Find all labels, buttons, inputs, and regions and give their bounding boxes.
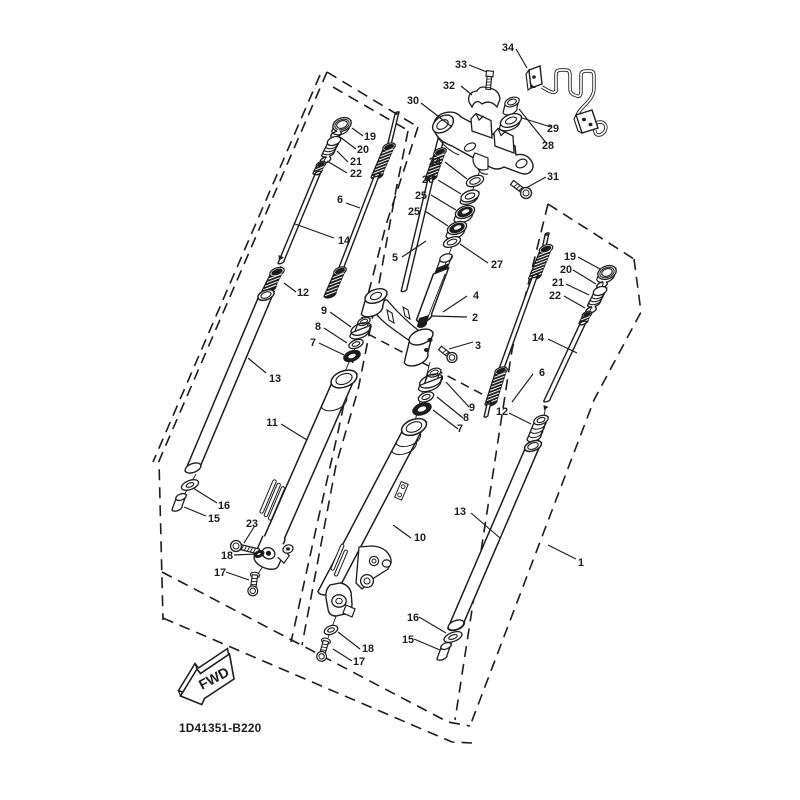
svg-text:6: 6 (539, 367, 545, 379)
svg-text:20: 20 (357, 144, 369, 156)
svg-text:15: 15 (208, 513, 220, 525)
svg-text:21: 21 (552, 277, 564, 289)
svg-text:29: 29 (547, 123, 559, 135)
svg-text:18: 18 (362, 643, 374, 655)
svg-text:24: 24 (429, 156, 441, 168)
svg-text:17: 17 (353, 656, 365, 668)
svg-text:19: 19 (564, 251, 576, 263)
svg-text:15: 15 (402, 634, 414, 646)
svg-text:23: 23 (246, 518, 258, 530)
svg-text:27: 27 (491, 259, 503, 271)
svg-text:17: 17 (214, 567, 226, 579)
svg-text:25: 25 (415, 190, 427, 202)
svg-text:9: 9 (469, 402, 475, 414)
svg-text:1: 1 (578, 557, 584, 569)
svg-text:9: 9 (321, 305, 327, 317)
svg-text:10: 10 (414, 532, 426, 544)
svg-text:22: 22 (350, 168, 362, 180)
svg-text:30: 30 (407, 95, 419, 107)
svg-text:20: 20 (560, 264, 572, 276)
svg-text:22: 22 (549, 290, 561, 302)
svg-text:12: 12 (297, 287, 309, 299)
svg-text:14: 14 (338, 235, 350, 247)
svg-text:8: 8 (315, 321, 321, 333)
svg-text:7: 7 (310, 337, 316, 349)
svg-text:18: 18 (221, 550, 233, 562)
svg-text:16: 16 (218, 500, 230, 512)
svg-text:34: 34 (502, 42, 514, 54)
svg-text:1D41351-B220: 1D41351-B220 (179, 721, 262, 735)
svg-text:26: 26 (422, 174, 434, 186)
svg-text:3: 3 (475, 340, 481, 352)
svg-text:4: 4 (473, 290, 479, 302)
svg-text:8: 8 (463, 412, 469, 424)
svg-text:6: 6 (337, 194, 343, 206)
svg-text:16: 16 (407, 612, 419, 624)
svg-text:7: 7 (457, 423, 463, 435)
svg-text:21: 21 (350, 156, 362, 168)
svg-text:25: 25 (408, 206, 420, 218)
svg-text:2: 2 (472, 312, 478, 324)
svg-text:5: 5 (392, 252, 398, 264)
svg-text:19: 19 (364, 131, 376, 143)
svg-text:31: 31 (547, 171, 559, 183)
svg-text:11: 11 (266, 417, 277, 429)
svg-text:12: 12 (496, 406, 508, 418)
svg-text:14: 14 (532, 332, 544, 344)
svg-text:32: 32 (443, 80, 455, 92)
svg-text:33: 33 (455, 59, 467, 71)
svg-text:13: 13 (269, 373, 281, 385)
svg-text:28: 28 (542, 140, 554, 152)
svg-text:13: 13 (454, 506, 466, 518)
